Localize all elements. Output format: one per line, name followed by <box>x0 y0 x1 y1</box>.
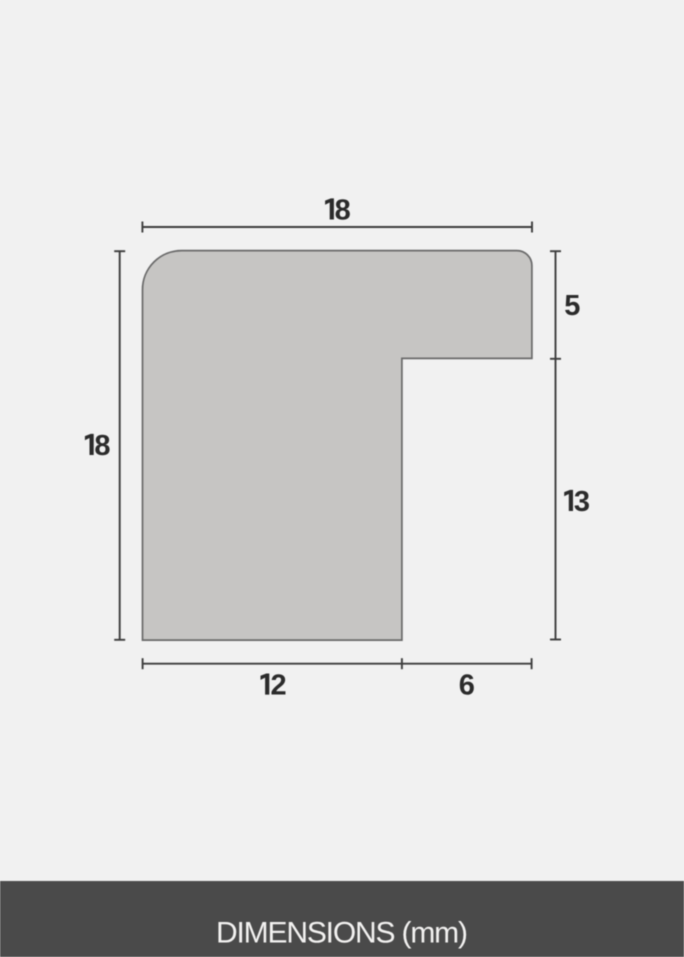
svg-text:8: 8 <box>335 195 351 227</box>
svg-text:DIMENSIONS (mm): DIMENSIONS (mm) <box>216 917 468 950</box>
svg-text:2: 2 <box>271 670 287 702</box>
svg-text:3: 3 <box>574 486 590 518</box>
svg-text:5: 5 <box>564 290 580 322</box>
svg-text:6: 6 <box>459 670 475 702</box>
svg-text:8: 8 <box>94 430 110 462</box>
